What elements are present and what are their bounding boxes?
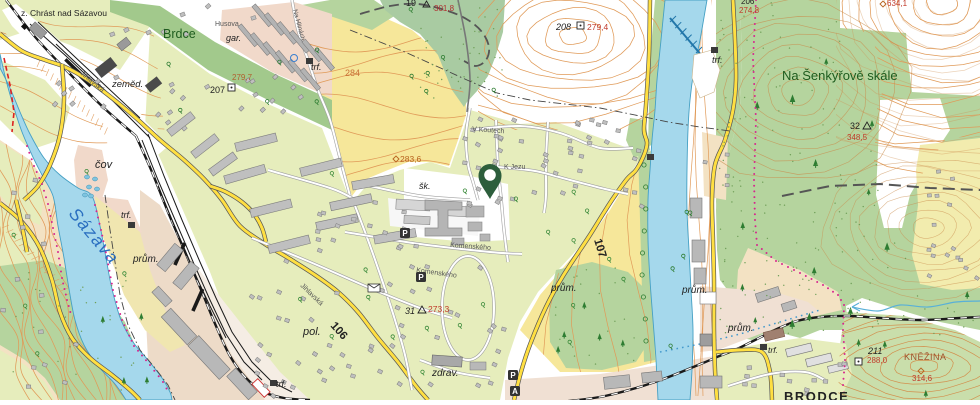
svg-text:211: 211 xyxy=(867,346,882,356)
svg-text:284: 284 xyxy=(345,68,360,78)
svg-text:prům.: prům. xyxy=(132,253,159,265)
svg-text:K Jezu: K Jezu xyxy=(504,164,526,171)
svg-text:čov: čov xyxy=(95,159,114,171)
svg-text:trf.: trf. xyxy=(712,55,723,65)
svg-text:279,7: 279,7 xyxy=(232,73,253,82)
svg-text:zdrav.: zdrav. xyxy=(431,368,459,379)
svg-text:KNĚŽINA: KNĚŽINA xyxy=(904,352,947,362)
svg-text:32: 32 xyxy=(850,121,860,131)
svg-text:274,8: 274,8 xyxy=(739,6,760,15)
svg-text:prům.: prům. xyxy=(727,322,754,334)
svg-text:P: P xyxy=(418,273,424,282)
svg-text:gar.: gar. xyxy=(226,33,241,43)
svg-text:273,3: 273,3 xyxy=(428,304,450,314)
svg-text:31: 31 xyxy=(405,306,415,316)
svg-text:pol.: pol. xyxy=(302,326,321,338)
svg-text:trf.: trf. xyxy=(276,379,287,389)
svg-text:trf.: trf. xyxy=(311,62,322,72)
svg-text:Brdce: Brdce xyxy=(163,27,196,41)
svg-text:z. Chrást nad Sázavou: z. Chrást nad Sázavou xyxy=(21,8,107,18)
svg-text:Husova: Husova xyxy=(215,21,239,28)
svg-text:348,5: 348,5 xyxy=(847,133,868,142)
svg-text:288,0: 288,0 xyxy=(867,356,888,365)
svg-text:634,1: 634,1 xyxy=(887,0,908,8)
svg-text:19: 19 xyxy=(406,0,416,8)
svg-text:279,4: 279,4 xyxy=(587,22,609,32)
svg-text:BRODCE: BRODCE xyxy=(784,389,849,400)
svg-text:206: 206 xyxy=(741,0,755,6)
svg-text:trf.: trf. xyxy=(121,210,132,220)
svg-text:208: 208 xyxy=(555,22,571,32)
svg-text:207: 207 xyxy=(210,85,225,95)
svg-text:zeměd.: zeměd. xyxy=(111,79,143,90)
svg-text:trf.: trf. xyxy=(768,345,778,355)
svg-text:P: P xyxy=(402,229,408,238)
svg-text:P: P xyxy=(510,371,516,380)
svg-text:Na Šenkýřově skále: Na Šenkýřově skále xyxy=(782,68,898,83)
svg-text:314,6: 314,6 xyxy=(912,374,933,383)
svg-text:283,6: 283,6 xyxy=(400,154,422,164)
svg-text:šk.: šk. xyxy=(419,181,431,191)
svg-text:301,8: 301,8 xyxy=(434,4,455,13)
svg-text:prům.: prům. xyxy=(681,284,708,296)
svg-text:prům.: prům. xyxy=(550,282,577,294)
svg-text:A: A xyxy=(512,387,518,396)
